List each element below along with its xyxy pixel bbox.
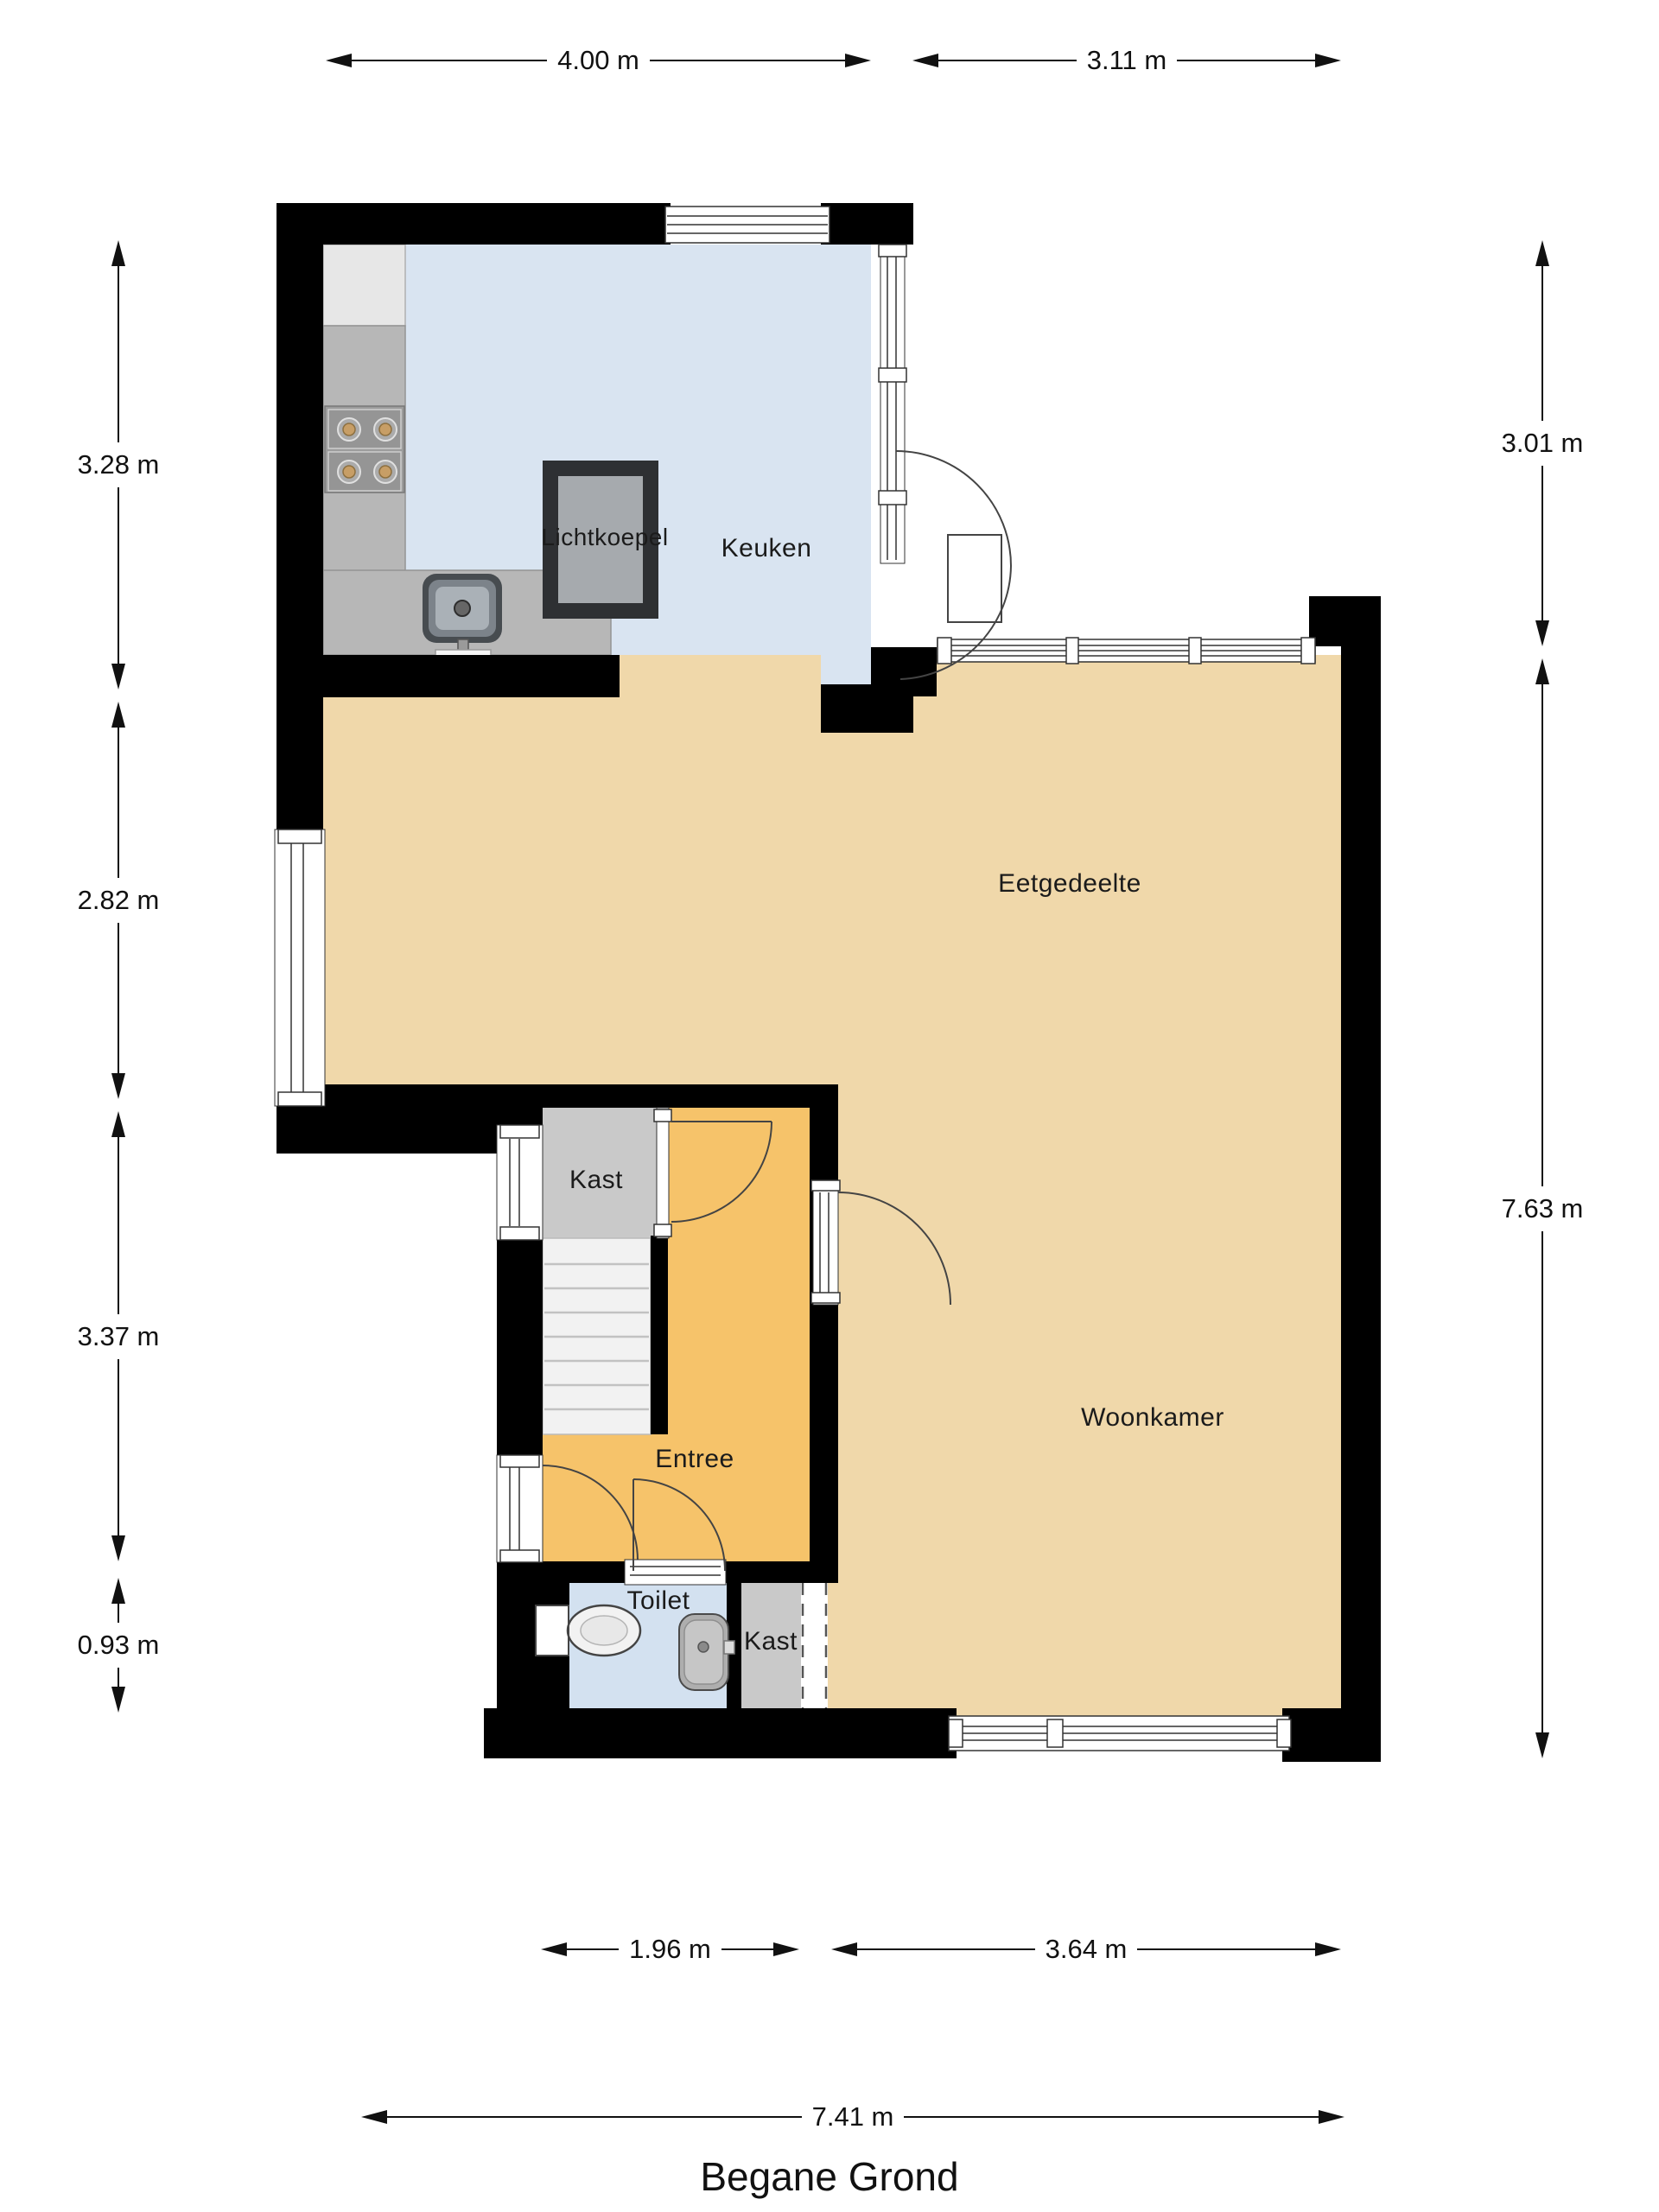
dimension-line [1137,1948,1315,1950]
window-closet1-west [497,1125,543,1240]
room-label-entree: Entree [655,1445,734,1474]
dimension-line [387,2116,802,2118]
dimension-line [1541,466,1543,620]
window-dining-top [938,638,1315,664]
dimension-line [118,923,119,1073]
dimension-left-kitchen: 3.28 m [67,240,170,690]
dimension-label: 3.11 m [1077,45,1177,76]
dimension-line [118,1668,119,1687]
arrow-down-icon [111,664,125,690]
dimension-label: 1.96 m [619,1934,721,1965]
dimension-right-living: 7.63 m [1491,658,1594,1758]
floorplan-page: Keuken Lichtkoepel Eetgedeelte Kast Entr… [0,0,1659,2212]
dimension-line [938,60,1077,61]
dimension-bottom-hall-width: 1.96 m [541,1936,799,1962]
dimension-left-dining: 2.82 m [67,702,170,1099]
dimension-label: 7.63 m [1502,1186,1584,1231]
dimension-label: 3.37 m [78,1314,160,1359]
toilet-fixture [536,1605,640,1656]
arrow-right-icon [1315,1942,1341,1956]
arrow-up-icon [111,240,125,266]
wall-toilet-stub-bottom [543,1654,569,1708]
stove [325,406,404,493]
dimension-left-hall: 3.37 m [67,1111,170,1561]
dimension-line [118,266,119,442]
dimension-line [1177,60,1315,61]
dimension-line [1541,1231,1543,1733]
arrow-left-icon [361,2110,387,2124]
wall-under-counter [276,655,620,697]
dimension-line [857,1948,1035,1950]
window-kitchen-top [665,207,829,243]
window-kitchen-east-glass [879,245,906,563]
arrow-left-icon [831,1942,857,1956]
arrow-down-icon [111,1535,125,1561]
arrow-right-icon [1319,2110,1344,2124]
staircase [543,1238,651,1434]
wall-entry-bottom-right [726,1561,838,1583]
dimension-line [118,728,119,878]
wall-top-right-column [821,203,913,245]
arrow-down-icon [1535,1732,1549,1758]
dimension-label: 4.00 m [547,45,650,76]
dimension-left-toilet: 0.93 m [67,1578,170,1713]
page-title: Begane Grond [0,2153,1659,2200]
outside-area [207,1154,497,1845]
wall-top-left [276,203,671,245]
dimension-line [650,60,845,61]
washbasin [679,1614,734,1690]
room-label-eetgedeelte: Eetgedeelte [998,869,1141,899]
arrow-up-icon [1535,658,1549,684]
arrow-down-icon [111,1687,125,1713]
room-label-keuken: Keuken [721,534,812,563]
dimension-line [118,487,119,664]
arrow-up-icon [1535,240,1549,266]
kitchen-cabinet [323,245,405,326]
room-label-woonkamer: Woonkamer [1081,1403,1224,1433]
dimension-label: 3.28 m [78,442,160,487]
arrow-up-icon [111,702,125,728]
room-label-lichtkoepel: Lichtkoepel [541,524,668,551]
room-label-toilet: Toilet [626,1586,690,1616]
wall-northeast-block [1309,596,1381,646]
floorplan-drawing [0,0,1659,2212]
wall-kitchen-corner-step2 [821,684,913,733]
arrow-right-icon [1315,54,1341,67]
dimension-label: 7.41 m [802,2101,905,2133]
arrow-left-icon [326,54,352,67]
dimension-right-kitchen: 3.01 m [1491,240,1594,646]
dimension-line [118,1137,119,1314]
arrow-right-icon [773,1942,799,1956]
dimension-top-kitchen-width: 4.00 m [326,48,871,73]
dimension-bottom-living-width: 3.64 m [831,1936,1341,1962]
wall-west-upper [276,203,323,834]
wall-entry-east [810,1084,838,1583]
dimension-line [721,1948,773,1950]
arrow-down-icon [111,1073,125,1099]
dimension-line [118,1604,119,1623]
arrow-down-icon [1535,620,1549,646]
room-label-kast-woonkamer: Kast [744,1627,798,1656]
wall-east [1341,596,1381,1762]
arrow-left-icon [912,54,938,67]
dimension-line [1541,684,1543,1186]
window-dining-west [275,829,325,1106]
room-label-kast-hal: Kast [569,1166,623,1195]
closet2-door-area [801,1583,828,1708]
wall-toilet-stub-top [543,1580,569,1607]
dimension-top-terrace-width: 3.11 m [912,48,1341,73]
dimension-line [904,2116,1319,2118]
arrow-up-icon [111,1111,125,1137]
dimension-line [567,1948,619,1950]
dimension-label: 0.93 m [78,1623,160,1668]
dimension-overall-width: 7.41 m [361,2104,1344,2130]
arrow-up-icon [111,1578,125,1604]
dimension-label: 3.64 m [1035,1934,1138,1965]
arrow-left-icon [541,1942,567,1956]
dimension-label: 3.01 m [1502,421,1584,466]
dimension-line [118,1359,119,1536]
dimension-line [1541,266,1543,421]
wall-hall-top-band [543,1084,838,1108]
window-livingroom-bottom [949,1716,1291,1751]
dimension-label: 2.82 m [78,878,160,923]
wall-stairs-east [651,1236,668,1434]
arrow-right-icon [845,54,871,67]
dimension-line [352,60,547,61]
wall-bottom-left [484,1708,957,1758]
